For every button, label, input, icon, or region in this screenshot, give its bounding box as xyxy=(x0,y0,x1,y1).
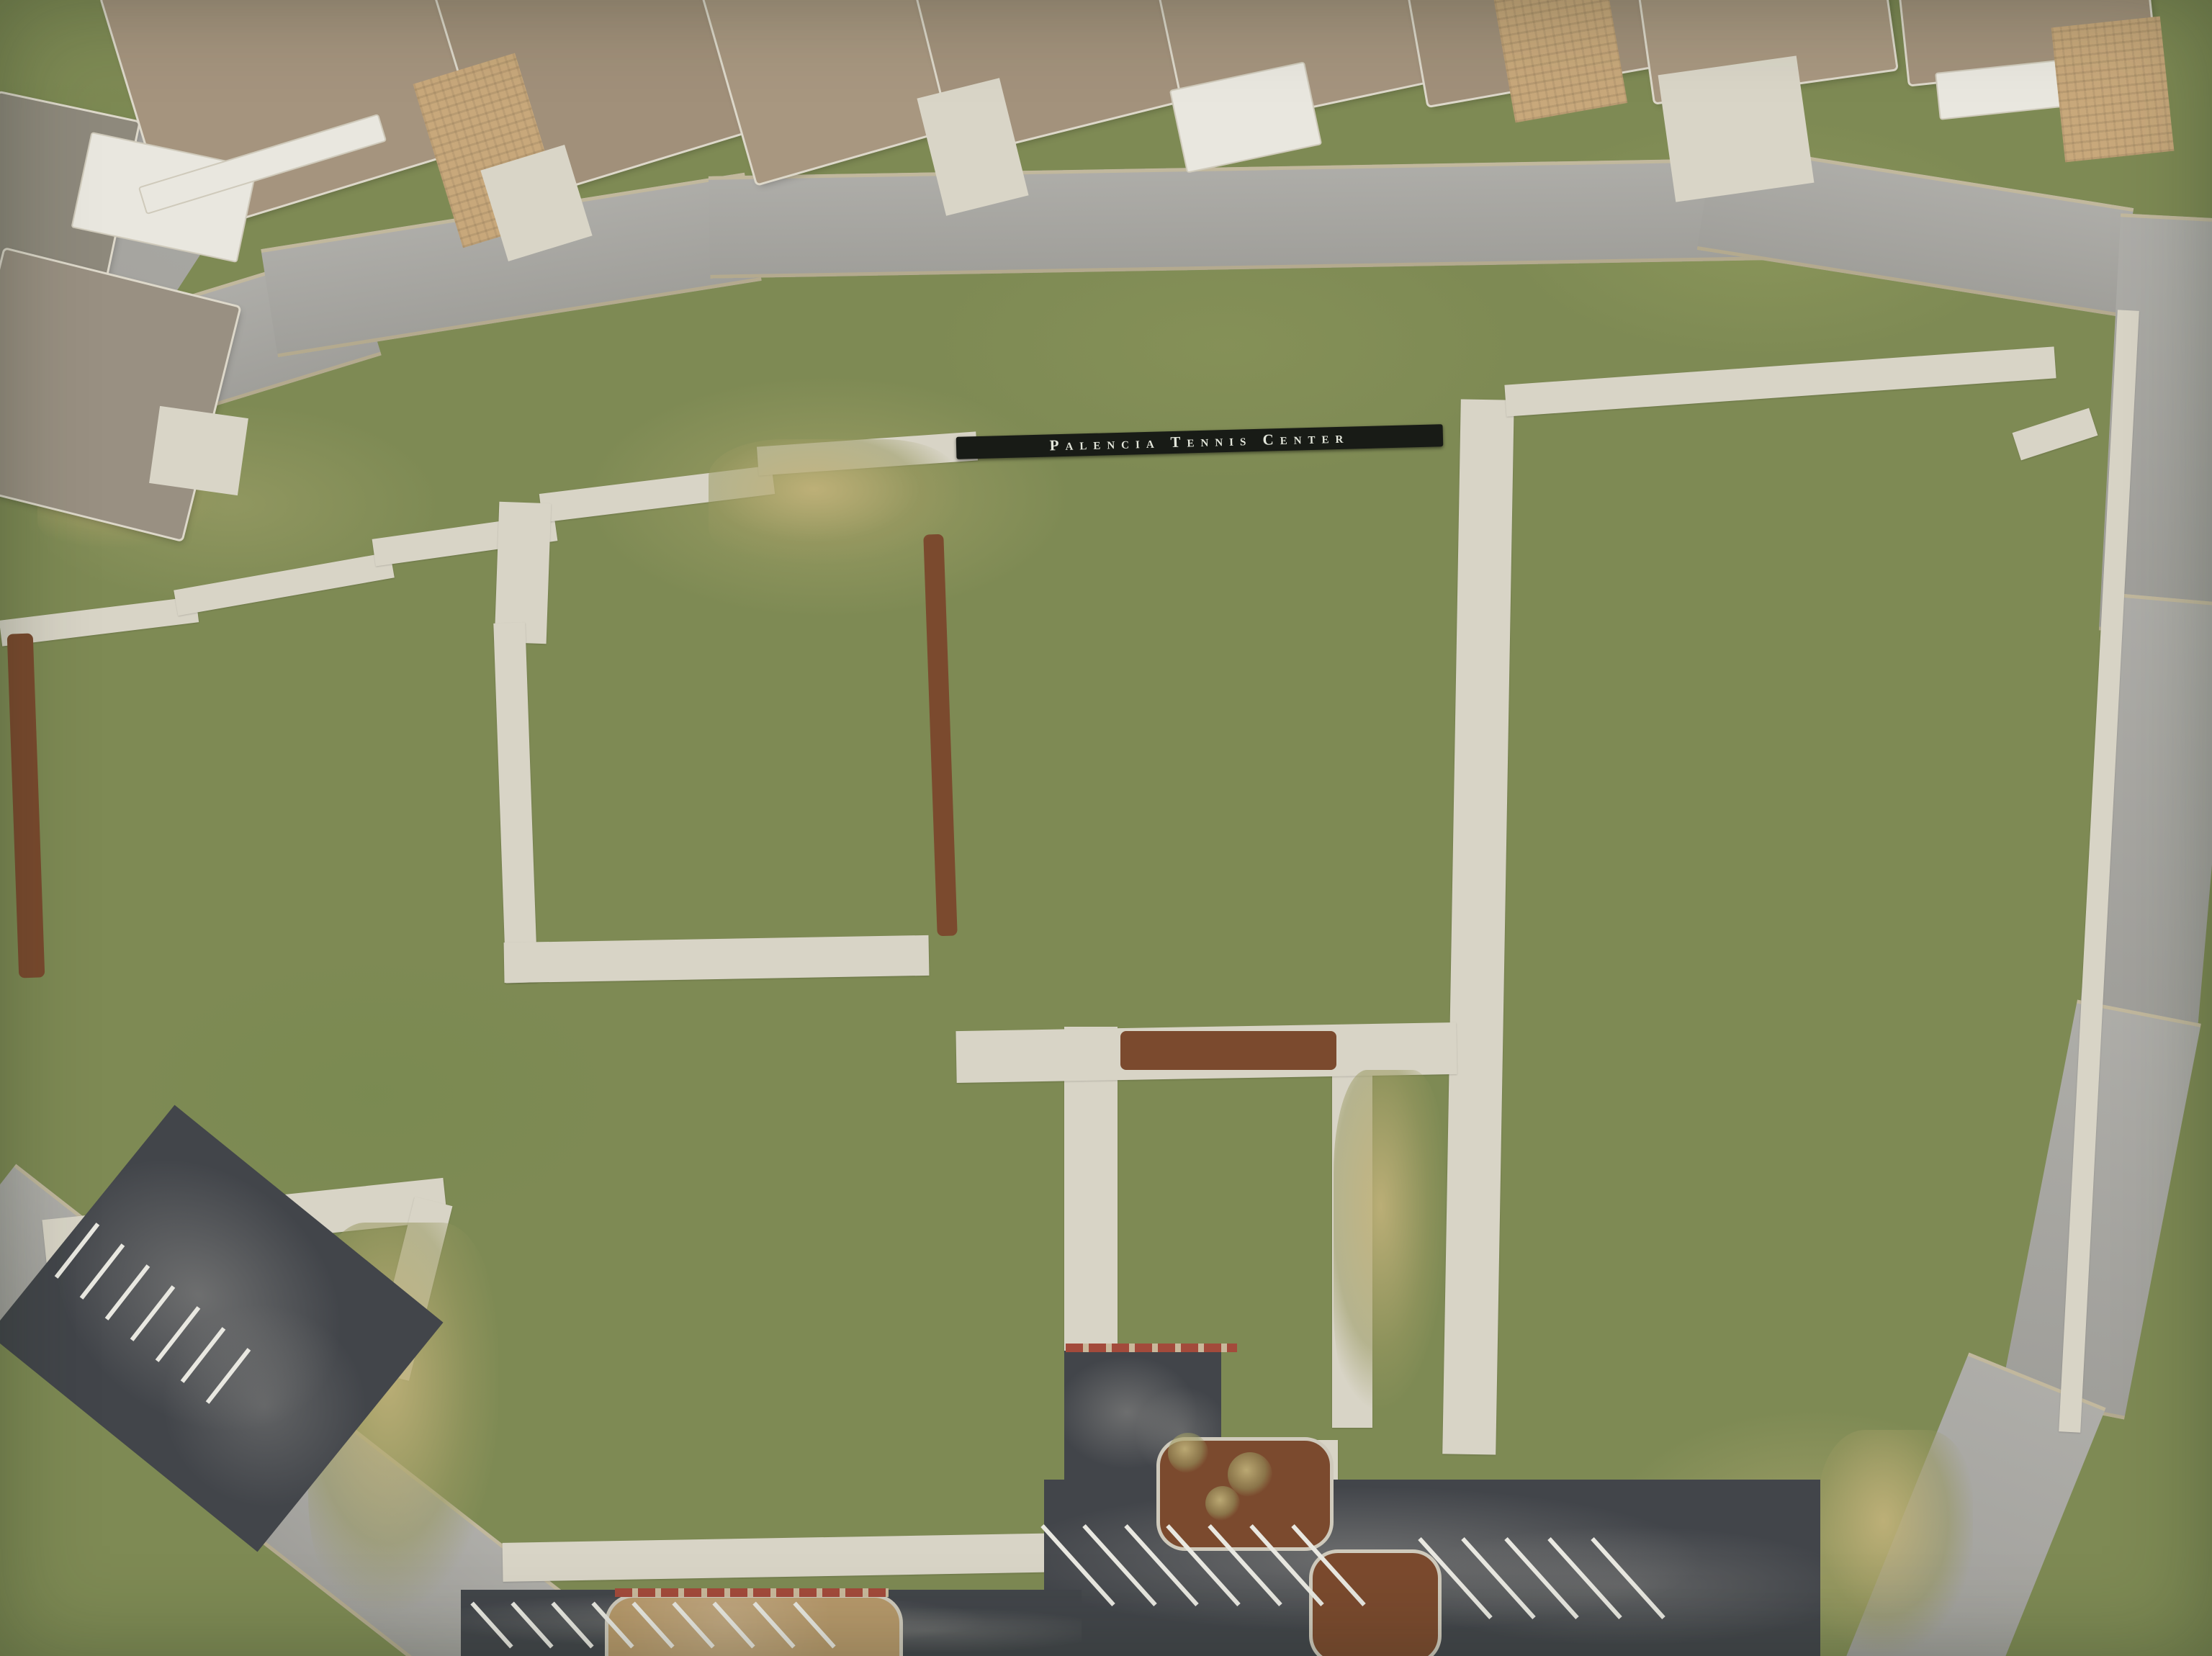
bare-shrub-0 xyxy=(1168,1433,1208,1473)
house-patio-1 xyxy=(1493,0,1628,122)
house-driveway-1 xyxy=(1658,55,1815,202)
brick-edging-0 xyxy=(1066,1344,1237,1352)
bare-shrub-2 xyxy=(1205,1486,1240,1521)
dry-scrub-patch-1 xyxy=(709,439,959,564)
dry-scrub-patch-0 xyxy=(1334,1070,1446,1411)
house-patio-2 xyxy=(2051,17,2175,163)
house-driveway-2 xyxy=(149,406,248,495)
walkway-18 xyxy=(504,935,930,983)
brick-edging-1 xyxy=(615,1588,889,1597)
road-segment-2 xyxy=(709,158,1768,279)
aerial-photo-stage: Palencia Tennis Center xyxy=(0,0,2212,1656)
mulch-bed-2 xyxy=(1120,1031,1336,1070)
